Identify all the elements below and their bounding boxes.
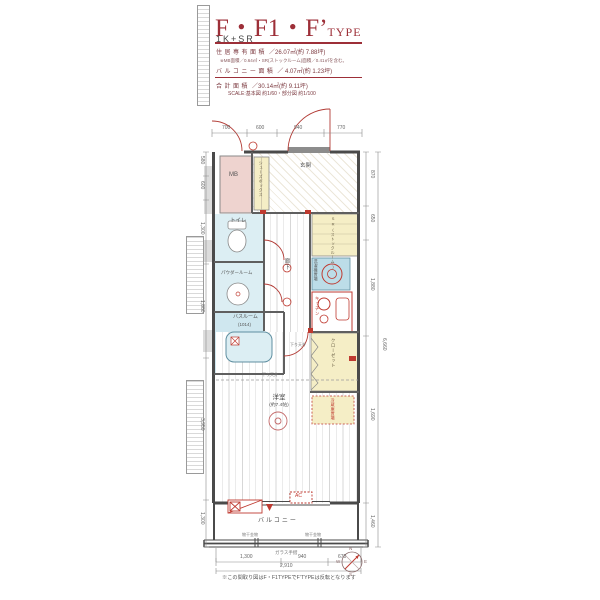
label-drop-ceiling: 下り天井 xyxy=(262,373,278,378)
label-closet: クローゼット xyxy=(331,338,336,368)
label-ac: AC xyxy=(295,494,302,500)
dim-bottom-2: 940 xyxy=(298,555,306,561)
room-label-toilet: トイレ xyxy=(230,218,247,224)
label-laundry-bracket: 物干金物 xyxy=(305,533,321,538)
dim-right-5: 1,460 xyxy=(368,515,374,528)
label-storage-sr: SR(ストックルーム) xyxy=(330,216,335,270)
dim-top-4: 770 xyxy=(337,126,345,132)
dim-top-1: 700 xyxy=(222,126,230,132)
room-label-powder: パウダールーム xyxy=(221,270,253,276)
room-label-mb: MB xyxy=(229,172,238,179)
mirror-note: ※この間取り図はF・F1TYPEでF’TYPEは反転となります xyxy=(222,576,356,582)
dim-right-total: 6,660 xyxy=(380,338,386,351)
floorplan-sheet: F・F1・F’TYPE 1K+SR 住居専有面積／26.07㎡(約 7.88坪)… xyxy=(0,0,600,600)
label-kitchen: キッチン xyxy=(315,296,320,316)
label-shoe-box: シューズボックス xyxy=(258,161,263,197)
washbasin xyxy=(227,283,249,305)
ceiling-light-icon xyxy=(269,412,287,430)
dim-left-1: 580 xyxy=(198,156,204,164)
dim-bottom-1: 1,300 xyxy=(240,555,253,561)
toilet-fixture xyxy=(228,221,246,252)
room-label-hall: 廊下 xyxy=(283,258,289,270)
entrance-threshold xyxy=(288,147,330,153)
balcony-access-triangle xyxy=(266,504,273,511)
room-label-bath-size: (1014) xyxy=(238,322,251,327)
dim-left-5: 3,950 xyxy=(198,418,204,431)
dim-top-2: 600 xyxy=(256,126,264,132)
dim-bottom-total: 2,910 xyxy=(280,564,293,570)
room-label-main-size: (約7.4帖) xyxy=(262,403,296,409)
dim-right-3: 1,880 xyxy=(368,278,374,291)
dim-left-4: 1,880 xyxy=(198,300,204,313)
label-laundry-bracket: 物干金物 xyxy=(242,533,258,538)
dim-left-6: 1,300 xyxy=(198,512,204,525)
dim-right-4: 1,690 xyxy=(368,408,374,421)
dim-right-1: 870 xyxy=(368,170,374,178)
dim-top-3: 940 xyxy=(294,126,302,132)
room-label-entrance: 玄関 xyxy=(300,163,311,169)
bathtub xyxy=(226,332,272,362)
mb-box xyxy=(220,156,252,213)
compass-w: W xyxy=(336,559,340,564)
compass-s: S xyxy=(349,572,352,577)
room-label-balcony: バルコニー xyxy=(258,518,298,525)
room-label-bath: バスルーム xyxy=(233,315,258,321)
label-fridge: 冷蔵庫置場 xyxy=(330,398,335,421)
plan-linework xyxy=(0,0,600,600)
room-label-main: 洋室 xyxy=(266,394,292,401)
dim-left-3: 1,300 xyxy=(198,222,204,235)
label-glass-rail: ガラス手摺 xyxy=(275,550,297,555)
compass-e: E xyxy=(364,559,367,564)
compass-n: N xyxy=(349,546,352,551)
label-drop-ceiling: 下り天井 xyxy=(290,343,306,348)
dim-left-2: 600 xyxy=(198,181,204,189)
evacuation-hatch xyxy=(228,500,262,513)
label-washer: 洗濯機置場 xyxy=(313,259,318,282)
dim-right-2: 650 xyxy=(368,214,374,222)
